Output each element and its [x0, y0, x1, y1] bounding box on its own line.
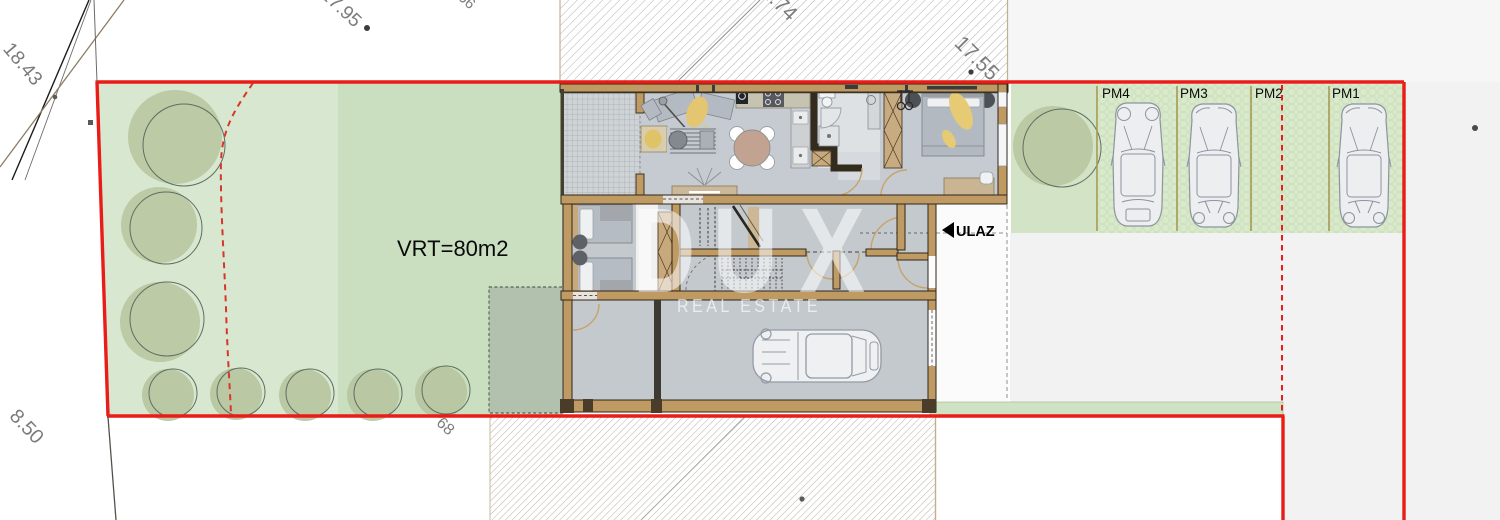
svg-text:ULAZ: ULAZ — [956, 224, 995, 240]
svg-text:PM3: PM3 — [1180, 86, 1208, 101]
svg-text:PM4: PM4 — [1102, 86, 1130, 101]
svg-text:VRT=80m2: VRT=80m2 — [397, 236, 508, 261]
svg-text:REAL ESTATE: REAL ESTATE — [677, 295, 821, 316]
svg-text:PM2: PM2 — [1255, 86, 1283, 101]
svg-text:PM1: PM1 — [1332, 86, 1360, 101]
